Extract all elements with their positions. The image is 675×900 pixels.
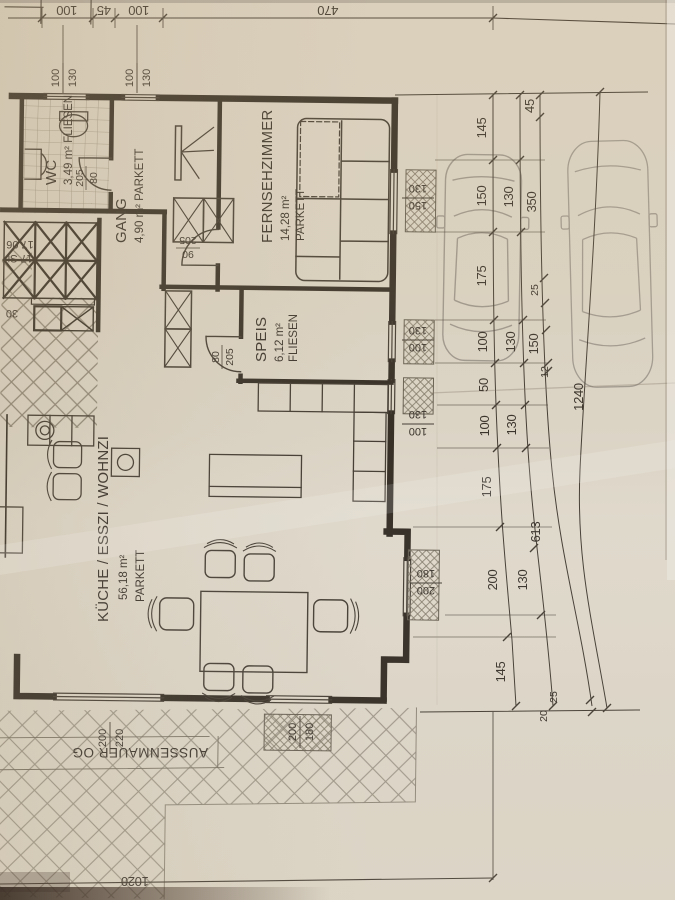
dim-total-label: 1240 xyxy=(571,383,586,411)
door-label-gang: 90 205 xyxy=(176,234,200,260)
svg-text:130: 130 xyxy=(409,182,427,194)
room-label-gang: GANG 4,90 m² PARKETT xyxy=(113,149,146,243)
car-icon xyxy=(559,140,661,388)
dim-label: 50 xyxy=(476,378,491,392)
dim-label: 175 xyxy=(474,266,489,287)
floorplan-photo: 100 45 100 470 145 150 175 100 50 100 17… xyxy=(0,0,675,900)
door-label-speis: 80 205 xyxy=(210,345,236,369)
svg-text:200: 200 xyxy=(97,729,109,747)
svg-text:205: 205 xyxy=(179,234,197,246)
room-label-speis: SPEIS 6,12 m² FLIESEN xyxy=(253,314,300,362)
svg-text:KÜCHE / ESSZI / WOHNZI: KÜCHE / ESSZI / WOHNZI xyxy=(94,436,112,622)
dim-label: 45 xyxy=(522,99,537,113)
svg-text:FLIESEN: FLIESEN xyxy=(288,314,300,362)
sofa-icon xyxy=(296,118,390,281)
dim-label: 150 xyxy=(474,186,489,207)
dim-label: 130 xyxy=(515,570,530,591)
stairs-tread-label: 30 xyxy=(6,307,18,319)
living-furniture xyxy=(0,440,82,554)
speis-shelves xyxy=(165,291,192,367)
dim-label: 350 xyxy=(524,192,539,213)
svg-text:PARKETT: PARKETT xyxy=(135,550,147,602)
chair xyxy=(204,663,234,690)
svg-text:90: 90 xyxy=(182,248,194,260)
svg-text:80: 80 xyxy=(88,172,100,184)
dim-label: 45 xyxy=(97,3,111,18)
svg-text:100: 100 xyxy=(409,341,427,353)
dim-label: 470 xyxy=(318,3,339,18)
dim-label: 100 xyxy=(477,416,492,437)
car-mirror xyxy=(521,217,529,229)
svg-text:205: 205 xyxy=(224,348,236,366)
dim-label: 25 xyxy=(529,284,541,296)
svg-text:200: 200 xyxy=(287,723,299,741)
svg-text:200: 200 xyxy=(417,584,435,596)
window-marker-top1: 100 130 xyxy=(50,63,79,93)
svg-text:100: 100 xyxy=(50,69,62,87)
svg-text:205: 205 xyxy=(74,169,86,187)
svg-text:17 St: 17 St xyxy=(7,252,33,264)
car-mirror xyxy=(561,216,569,229)
svg-text:PARKETT: PARKETT xyxy=(295,189,307,241)
armchair xyxy=(53,473,81,499)
dining-table xyxy=(200,591,308,672)
kitchen-island xyxy=(209,454,302,497)
chair xyxy=(205,550,235,577)
car-icon xyxy=(434,154,530,362)
svg-text:130: 130 xyxy=(409,408,427,420)
svg-text:150: 150 xyxy=(409,199,427,211)
dim-label: 1020 xyxy=(121,874,149,889)
svg-text:130: 130 xyxy=(67,69,79,87)
svg-text:17,06: 17,06 xyxy=(6,238,34,250)
coat-rack-icon xyxy=(175,126,182,180)
svg-text:FERNSEHZIMMER: FERNSEHZIMMER xyxy=(259,110,276,243)
svg-text:180: 180 xyxy=(417,567,435,579)
dim-label: 613 xyxy=(528,522,543,543)
gang-furniture xyxy=(173,126,234,243)
dining-set xyxy=(147,539,359,706)
svg-text:6,12 m²: 6,12 m² xyxy=(274,323,286,362)
svg-text:100: 100 xyxy=(409,425,427,437)
dim-label: 130 xyxy=(504,415,519,436)
window-marker-top2: 100 130 xyxy=(124,63,153,93)
dim-label: 150 xyxy=(526,334,541,355)
dim-label: 145 xyxy=(493,662,508,683)
svg-text:56,18 m²: 56,18 m² xyxy=(118,554,130,600)
svg-text:GANG: GANG xyxy=(113,198,130,243)
car-mirror xyxy=(649,214,657,227)
dim-label: 100 xyxy=(475,332,490,353)
dim-label: 145 xyxy=(474,118,489,139)
dim-label: 12 xyxy=(539,366,551,378)
chair xyxy=(244,554,274,581)
dim-label: 130 xyxy=(501,187,516,208)
dim-label: 100 xyxy=(57,3,78,18)
svg-text:100: 100 xyxy=(124,69,136,87)
chair xyxy=(243,666,273,693)
svg-text:130: 130 xyxy=(141,69,153,87)
armchair xyxy=(313,600,347,632)
dim-label: 130 xyxy=(503,332,518,353)
dim-label: 200 xyxy=(485,570,500,591)
armchair xyxy=(159,598,193,630)
svg-text:WC: WC xyxy=(43,160,60,185)
floorplan-drawing: 100 45 100 470 145 150 175 100 50 100 17… xyxy=(0,0,675,900)
dim-label: 175 xyxy=(479,477,494,498)
svg-text:130: 130 xyxy=(409,324,427,336)
dim-label: 25 xyxy=(548,691,560,703)
dim-label: 100 xyxy=(129,3,150,18)
car-mirror xyxy=(437,216,445,228)
cooktop-icon xyxy=(117,454,133,470)
svg-text:220: 220 xyxy=(114,729,126,747)
svg-text:SPEIS: SPEIS xyxy=(253,317,270,362)
svg-text:180: 180 xyxy=(304,723,316,741)
svg-text:80: 80 xyxy=(210,351,222,363)
svg-text:14,28 m²: 14,28 m² xyxy=(280,195,292,241)
terrace-hatch-area xyxy=(0,703,416,900)
aussenmauer-label: AUSSENMAUER OG xyxy=(72,745,208,760)
dim-label: 20 xyxy=(538,710,550,722)
svg-text:4,90 m² PARKETT: 4,90 m² PARKETT xyxy=(134,149,146,243)
